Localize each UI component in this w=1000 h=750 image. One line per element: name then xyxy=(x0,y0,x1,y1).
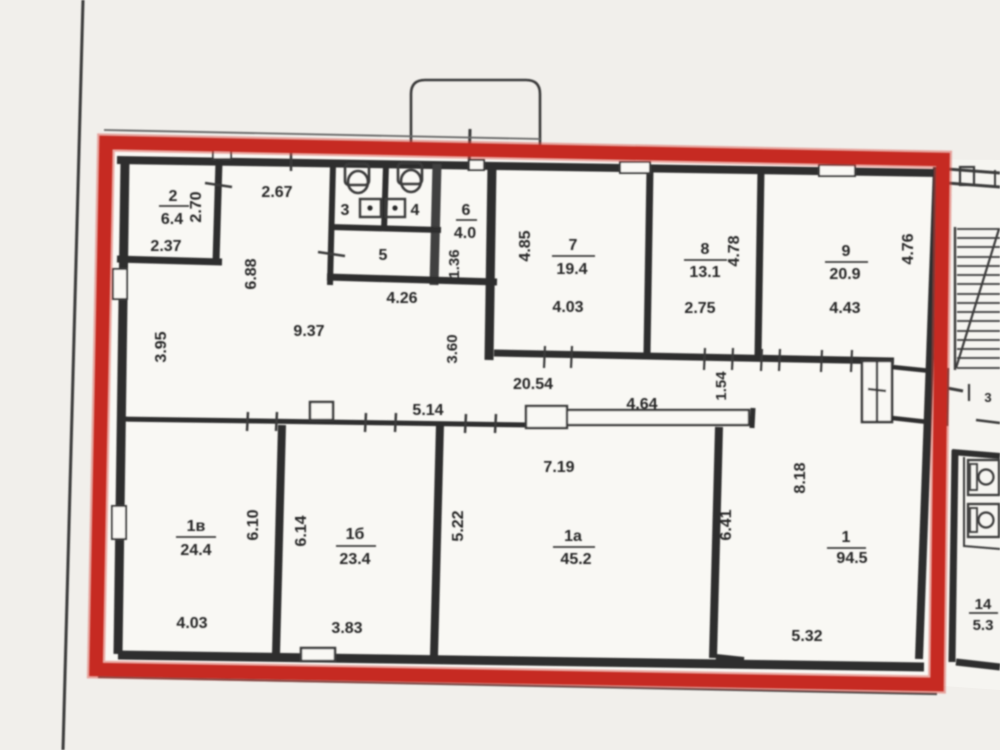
svg-text:4.64: 4.64 xyxy=(626,396,657,413)
svg-text:2.75: 2.75 xyxy=(684,300,715,317)
svg-text:1б: 1б xyxy=(346,526,365,543)
svg-text:3.60: 3.60 xyxy=(444,334,461,363)
svg-text:23.4: 23.4 xyxy=(339,551,370,568)
svg-text:2.70: 2.70 xyxy=(188,191,205,222)
svg-text:6.88: 6.88 xyxy=(243,258,260,289)
svg-text:6.10: 6.10 xyxy=(245,509,262,540)
svg-text:4.85: 4.85 xyxy=(517,230,534,261)
svg-text:4.0: 4.0 xyxy=(454,225,476,242)
svg-text:6.14: 6.14 xyxy=(293,515,310,546)
svg-text:3: 3 xyxy=(984,390,991,405)
svg-text:8: 8 xyxy=(701,241,710,258)
svg-text:3: 3 xyxy=(341,202,350,219)
svg-text:4.03: 4.03 xyxy=(176,615,207,632)
svg-text:45.2: 45.2 xyxy=(560,551,591,568)
svg-text:1в: 1в xyxy=(187,518,206,535)
svg-text:20.54: 20.54 xyxy=(513,376,553,393)
svg-text:9: 9 xyxy=(842,243,851,260)
svg-text:1.36: 1.36 xyxy=(446,249,463,278)
svg-text:3.95: 3.95 xyxy=(153,331,170,362)
svg-text:7.19: 7.19 xyxy=(543,459,574,476)
svg-text:4.03: 4.03 xyxy=(552,299,583,316)
svg-text:6: 6 xyxy=(462,202,471,219)
svg-text:14: 14 xyxy=(975,596,992,613)
svg-text:5.22: 5.22 xyxy=(450,510,467,541)
svg-text:5.14: 5.14 xyxy=(412,402,443,419)
svg-text:4.43: 4.43 xyxy=(829,300,860,317)
svg-text:1: 1 xyxy=(842,529,851,546)
svg-text:1.54: 1.54 xyxy=(713,371,730,401)
svg-text:8.18: 8.18 xyxy=(792,462,809,493)
svg-text:13.1: 13.1 xyxy=(689,264,720,281)
svg-text:4: 4 xyxy=(411,202,420,219)
svg-text:20.9: 20.9 xyxy=(829,266,860,283)
svg-text:5: 5 xyxy=(379,247,388,264)
svg-text:6.4: 6.4 xyxy=(161,211,183,228)
svg-text:7: 7 xyxy=(569,237,578,254)
svg-text:3.83: 3.83 xyxy=(331,620,362,637)
svg-text:4.26: 4.26 xyxy=(386,290,417,307)
svg-text:2.37: 2.37 xyxy=(150,238,181,255)
svg-text:2.67: 2.67 xyxy=(261,184,292,201)
svg-text:4.78: 4.78 xyxy=(726,235,743,266)
svg-text:6.41: 6.41 xyxy=(718,509,735,540)
svg-text:5.32: 5.32 xyxy=(791,628,822,645)
svg-text:5.3: 5.3 xyxy=(973,617,994,634)
svg-text:4.76: 4.76 xyxy=(900,233,917,264)
svg-text:94.5: 94.5 xyxy=(836,550,867,567)
svg-text:24.4: 24.4 xyxy=(180,542,211,559)
svg-text:2: 2 xyxy=(169,188,178,205)
svg-text:1а: 1а xyxy=(564,528,582,545)
svg-text:19.4: 19.4 xyxy=(556,261,587,278)
svg-text:9.37: 9.37 xyxy=(293,323,324,340)
